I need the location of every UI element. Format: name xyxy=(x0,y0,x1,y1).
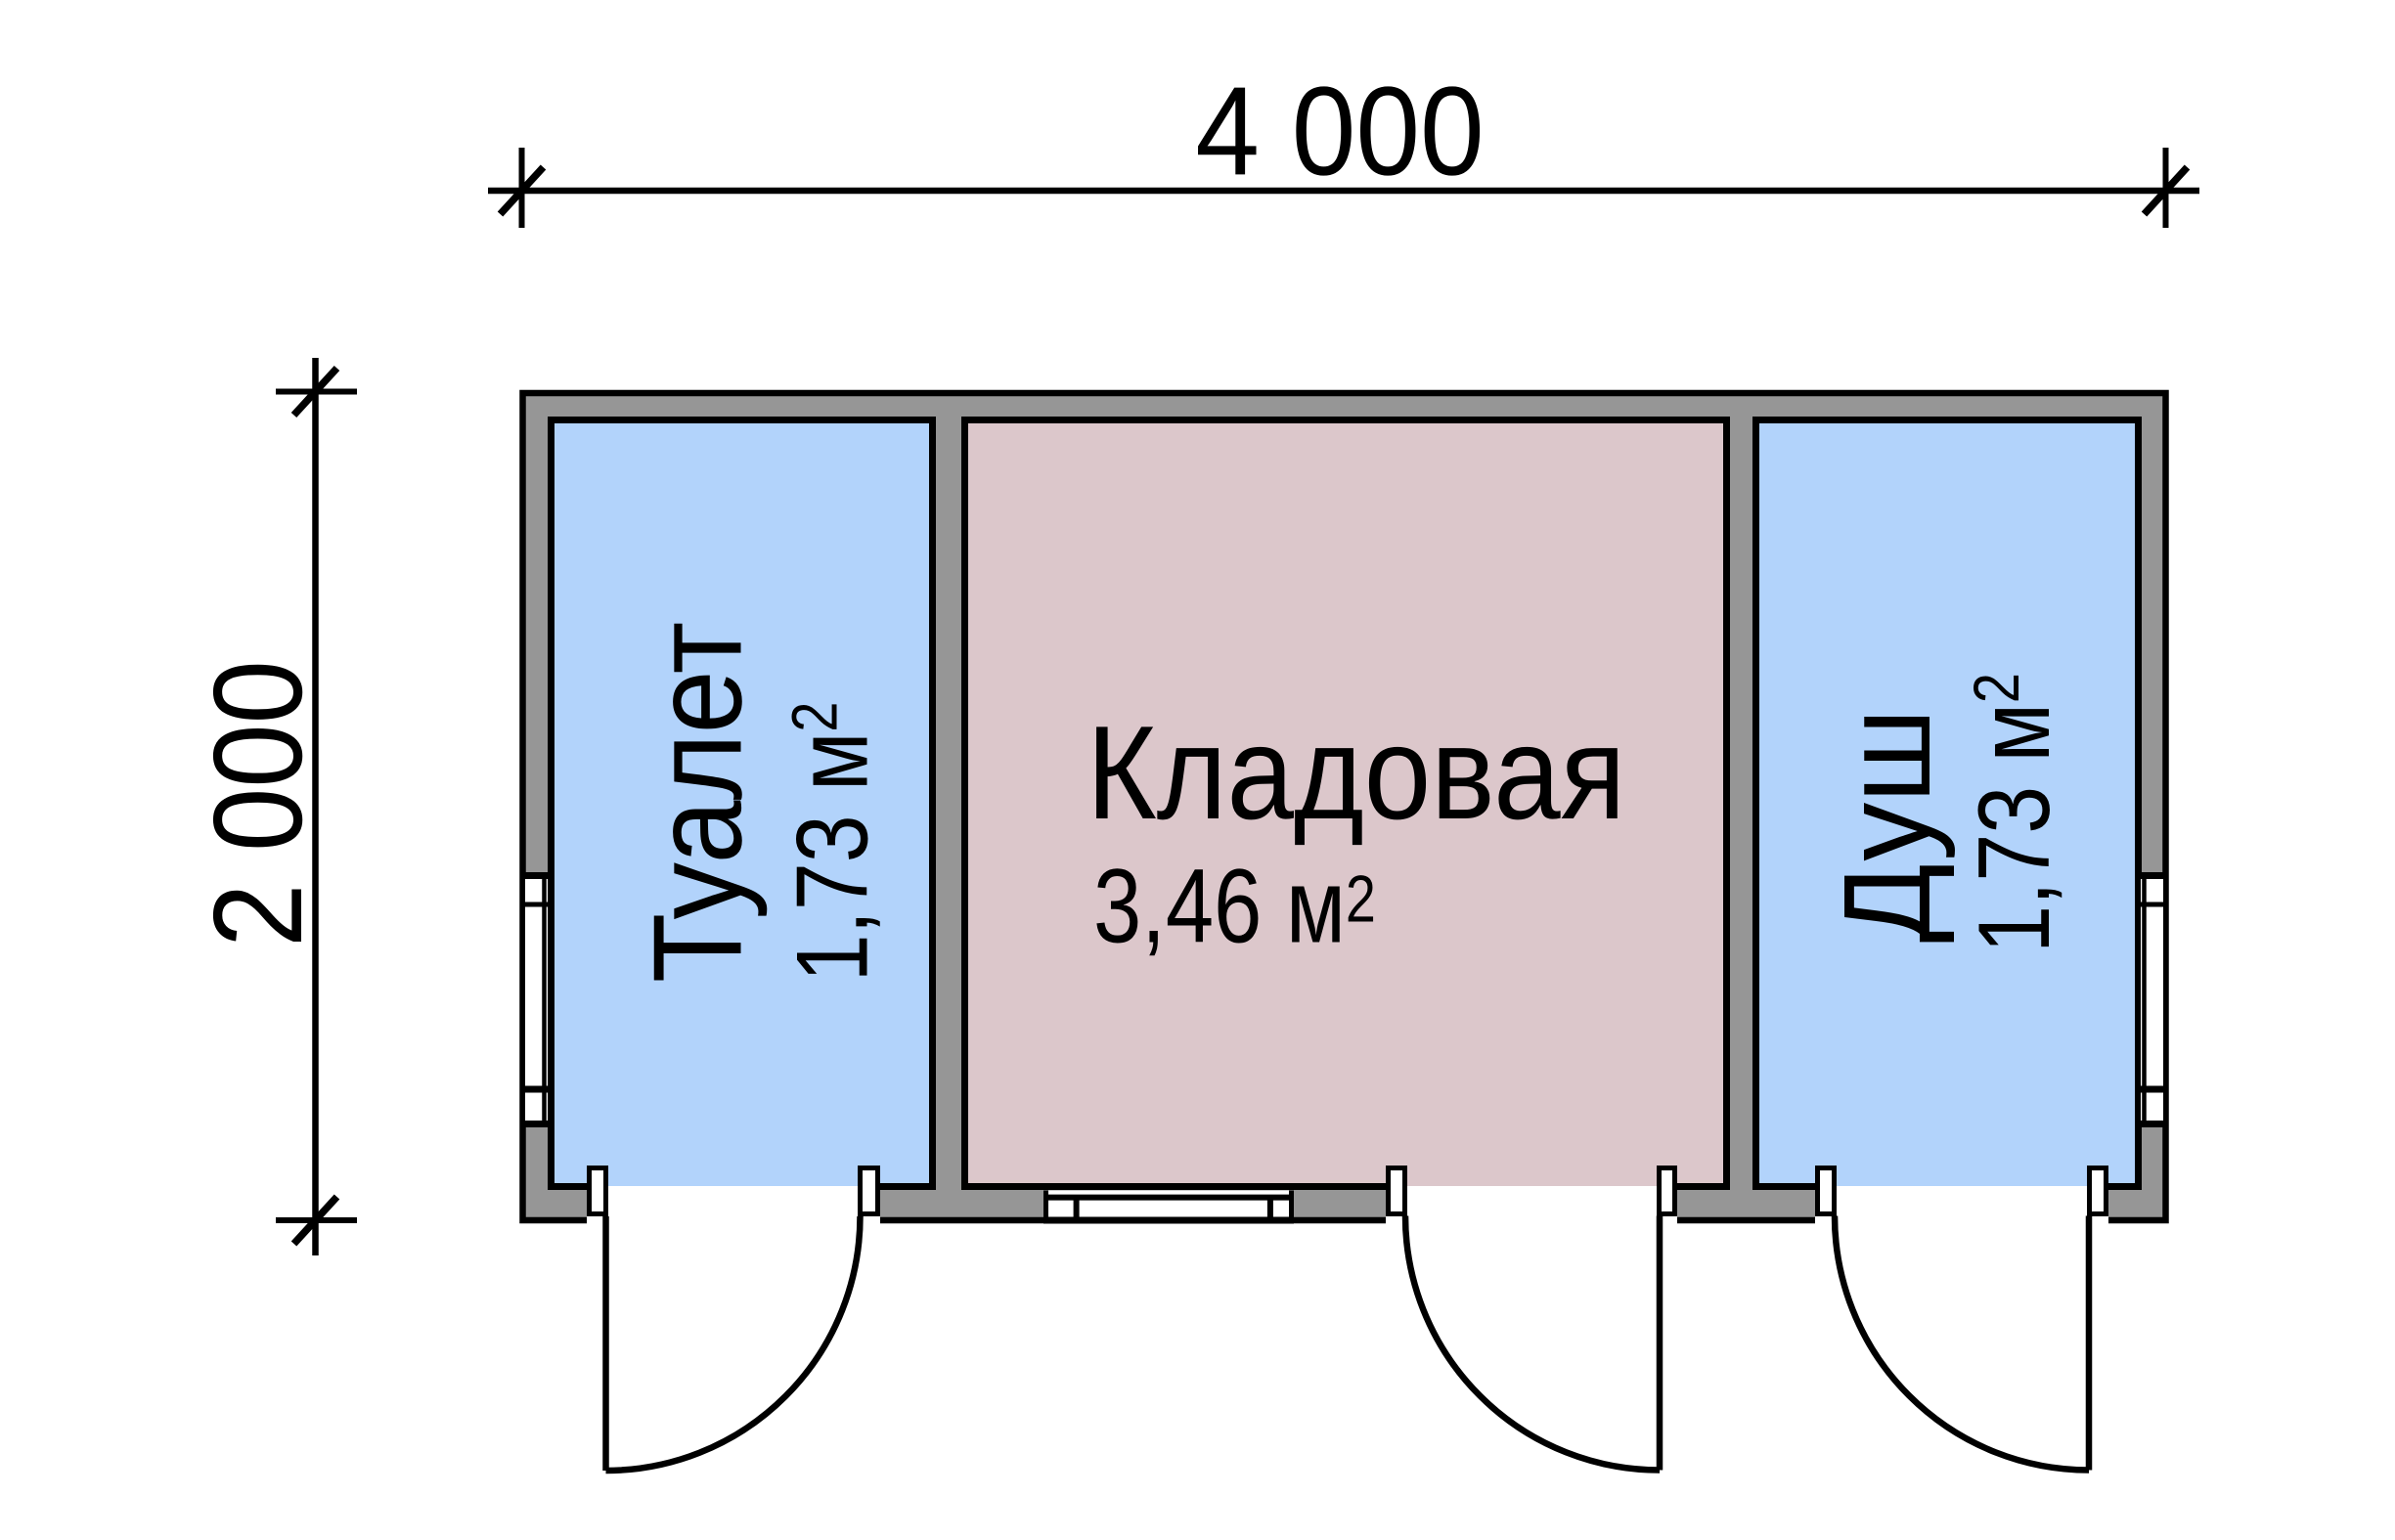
svg-text:4 000: 4 000 xyxy=(1195,62,1484,202)
svg-text:1,73 м2: 1,73 м2 xyxy=(776,702,890,983)
svg-text:2 000: 2 000 xyxy=(188,660,329,947)
svg-text:Душ: Душ xyxy=(1819,709,1956,944)
svg-text:1,73 м2: 1,73 м2 xyxy=(1958,673,2071,953)
svg-text:Туалет: Туалет xyxy=(628,622,769,983)
svg-text:Кладовая: Кладовая xyxy=(1087,699,1625,847)
svg-text:3,46 м2: 3,46 м2 xyxy=(1093,847,1376,964)
